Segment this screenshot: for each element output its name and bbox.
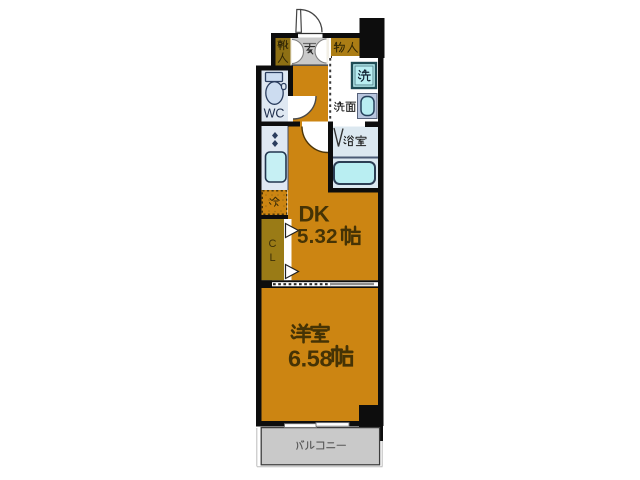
svg-text:DK: DK [299, 202, 330, 227]
svg-text:6.58: 6.58 [288, 346, 332, 372]
svg-text:C: C [269, 238, 277, 250]
svg-text:WC: WC [264, 107, 285, 121]
svg-text:5.32: 5.32 [297, 225, 338, 248]
svg-text:L: L [269, 252, 275, 264]
